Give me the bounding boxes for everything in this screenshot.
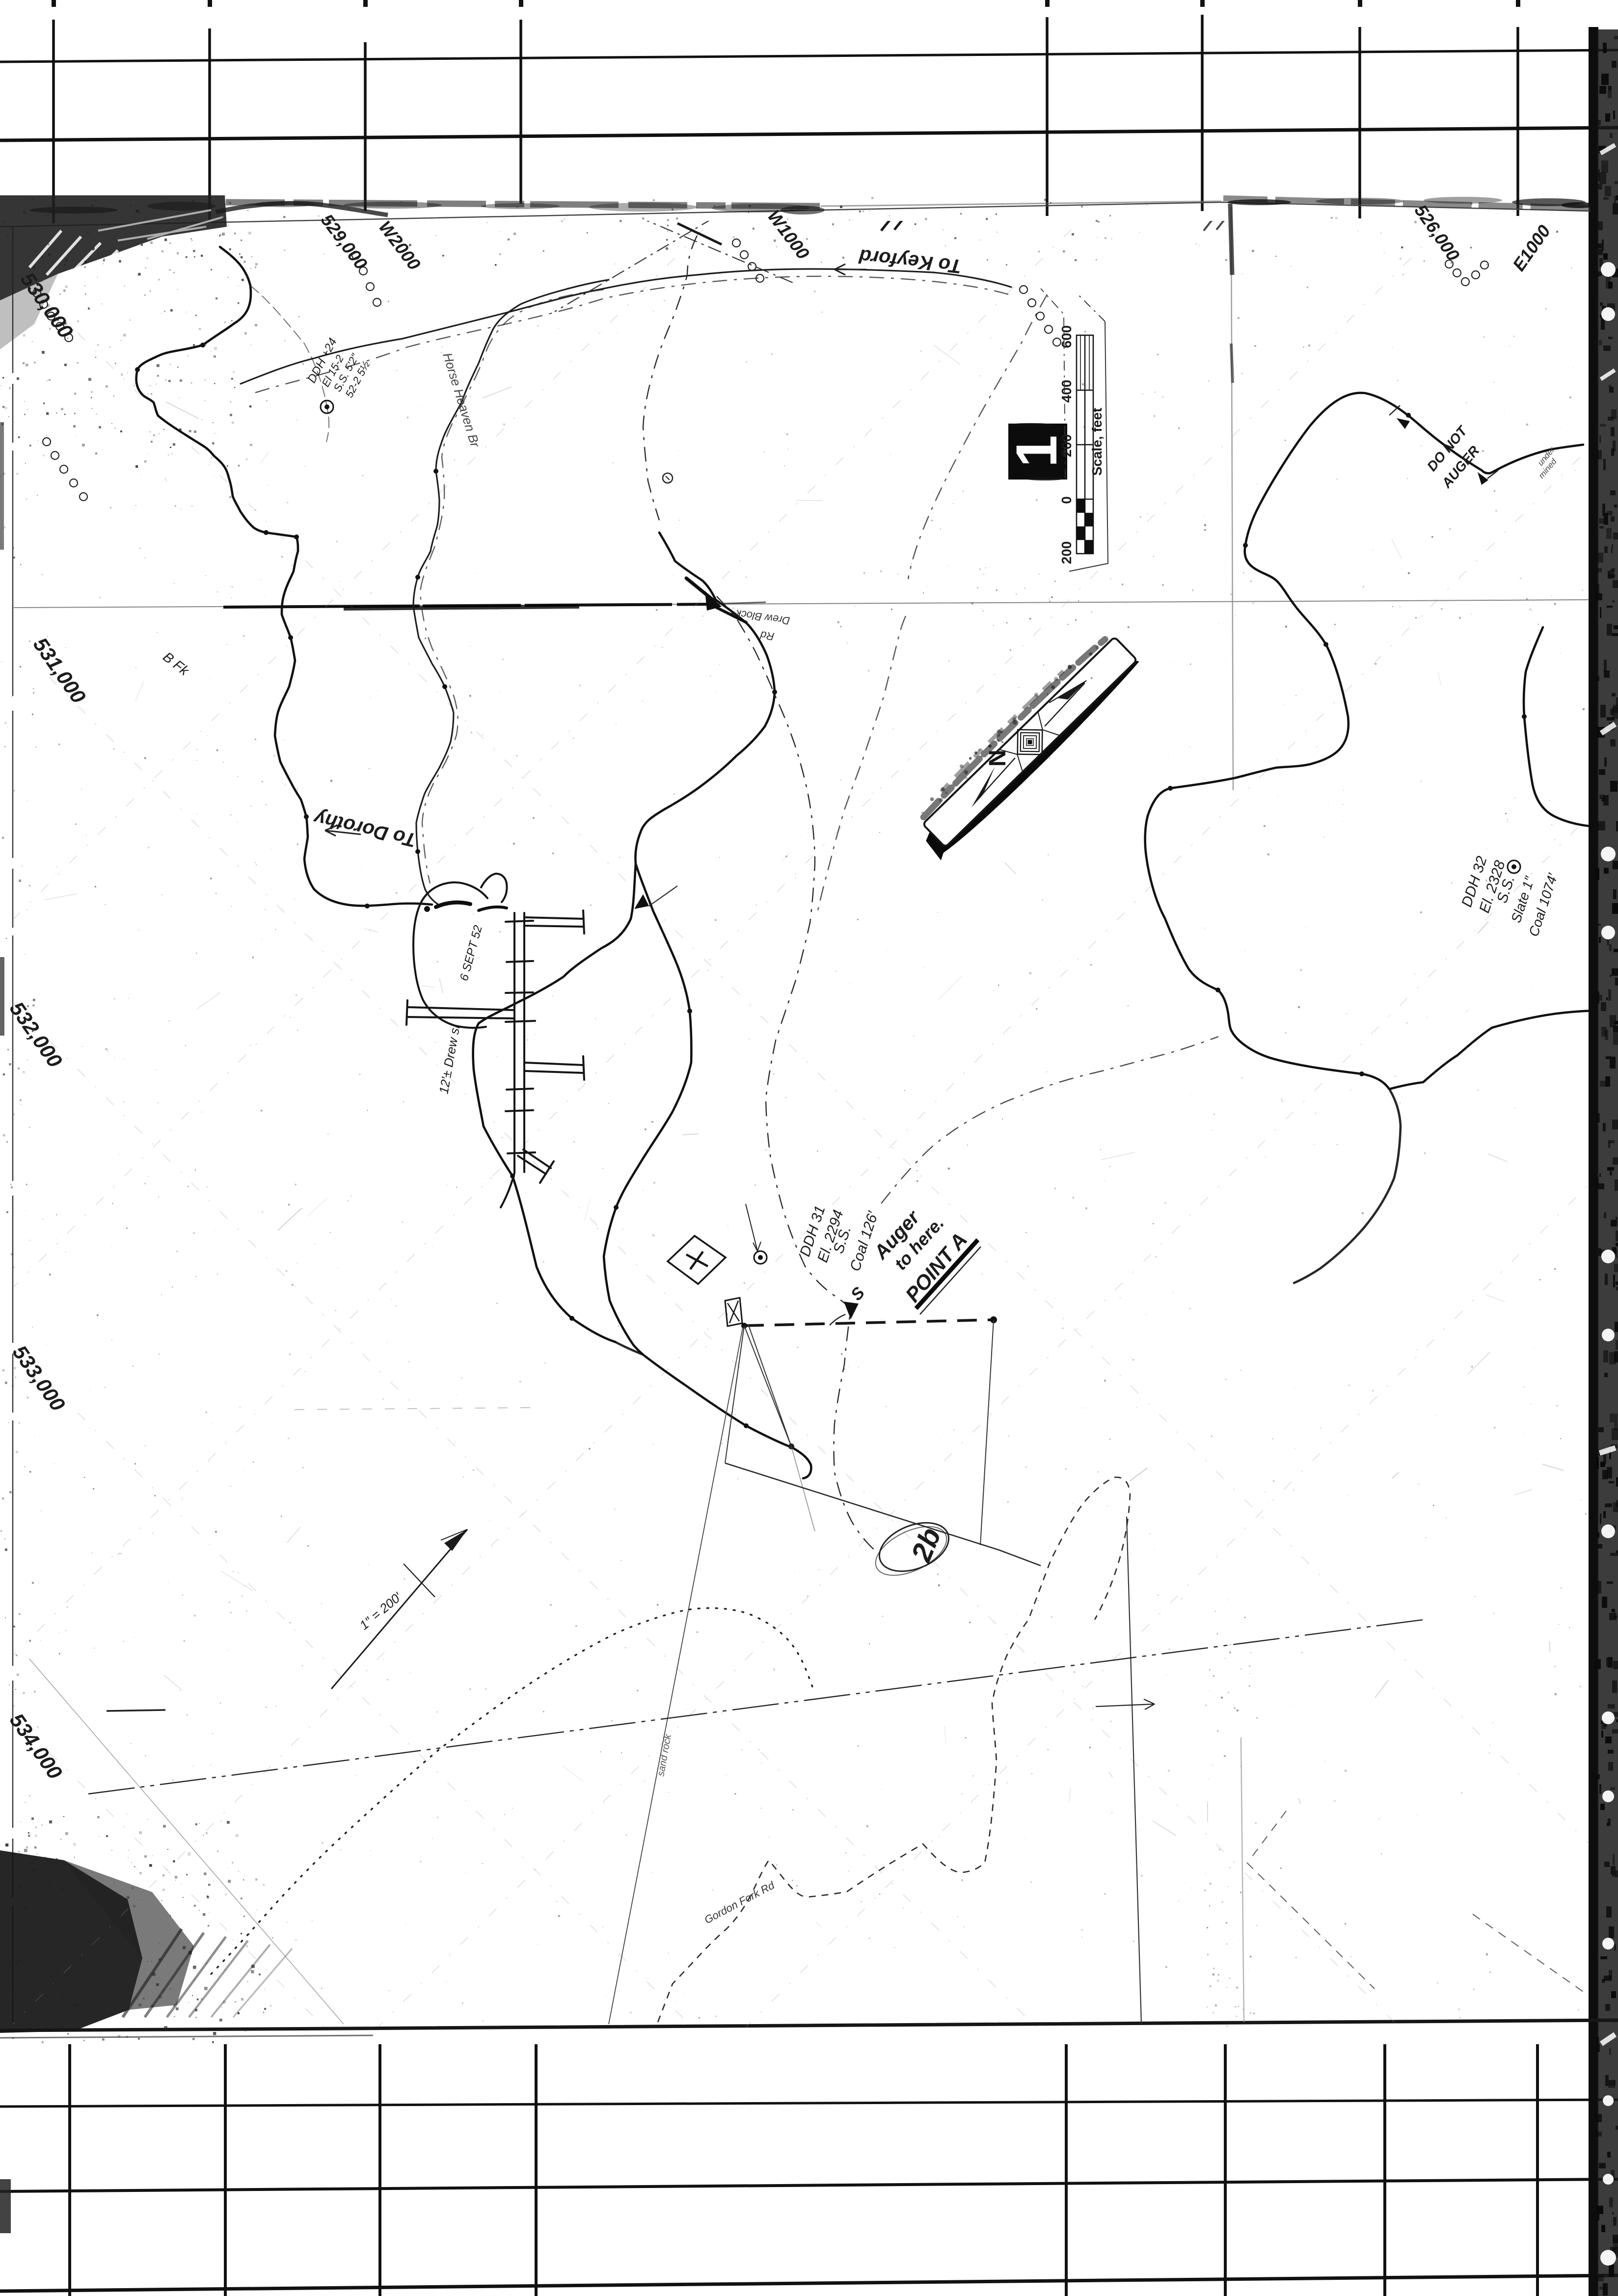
svg-text:N: N bbox=[985, 749, 1011, 767]
svg-text:400: 400 bbox=[1059, 380, 1074, 403]
svg-text:0: 0 bbox=[1059, 496, 1074, 504]
svg-text:600: 600 bbox=[1059, 325, 1074, 348]
svg-text:Scale, feet: Scale, feet bbox=[1089, 408, 1105, 476]
svg-text:Rd: Rd bbox=[759, 629, 775, 643]
svg-text:200: 200 bbox=[1059, 434, 1074, 457]
svg-text:200: 200 bbox=[1059, 541, 1074, 564]
